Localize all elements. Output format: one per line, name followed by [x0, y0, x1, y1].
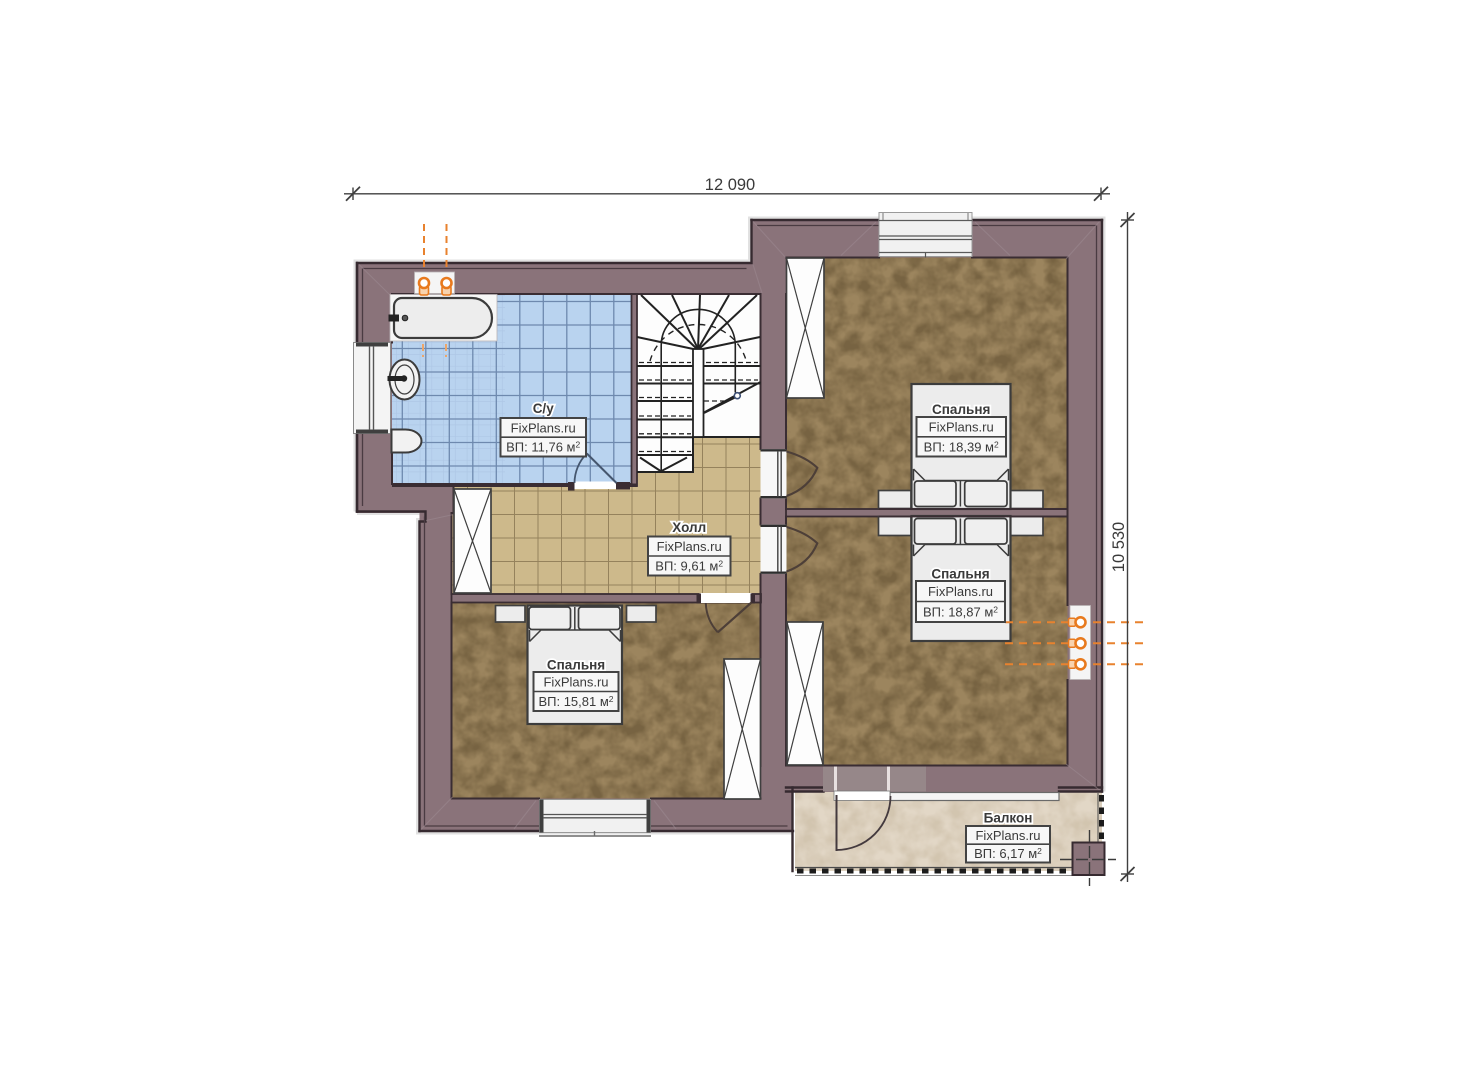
- svg-text:FixPlans.ru: FixPlans.ru: [511, 420, 576, 435]
- svg-text:С/у: С/у: [533, 401, 555, 416]
- svg-text:ВП: 15,81 м2: ВП: 15,81 м2: [538, 694, 613, 709]
- svg-text:Спальня: Спальня: [547, 658, 605, 673]
- svg-text:FixPlans.ru: FixPlans.ru: [928, 584, 993, 599]
- svg-text:ВП: 6,17 м2: ВП: 6,17 м2: [974, 846, 1042, 861]
- svg-text:ВП: 18,87 м2: ВП: 18,87 м2: [923, 605, 998, 620]
- svg-text:Спальня: Спальня: [932, 402, 990, 417]
- svg-text:ВП: 18,39 м2: ВП: 18,39 м2: [924, 439, 999, 454]
- svg-text:FixPlans.ru: FixPlans.ru: [657, 539, 722, 554]
- svg-text:FixPlans.ru: FixPlans.ru: [975, 828, 1040, 843]
- svg-text:Холл: Холл: [672, 520, 706, 535]
- svg-text:Спальня: Спальня: [931, 567, 989, 582]
- svg-text:10 530: 10 530: [1110, 522, 1128, 572]
- svg-text:Балкон: Балкон: [984, 811, 1033, 826]
- svg-text:12 090: 12 090: [705, 176, 755, 194]
- svg-text:FixPlans.ru: FixPlans.ru: [543, 675, 608, 690]
- svg-text:ВП: 11,76 м2: ВП: 11,76 м2: [506, 440, 580, 455]
- svg-text:FixPlans.ru: FixPlans.ru: [929, 420, 994, 435]
- svg-text:ВП: 9,61 м2: ВП: 9,61 м2: [655, 559, 723, 574]
